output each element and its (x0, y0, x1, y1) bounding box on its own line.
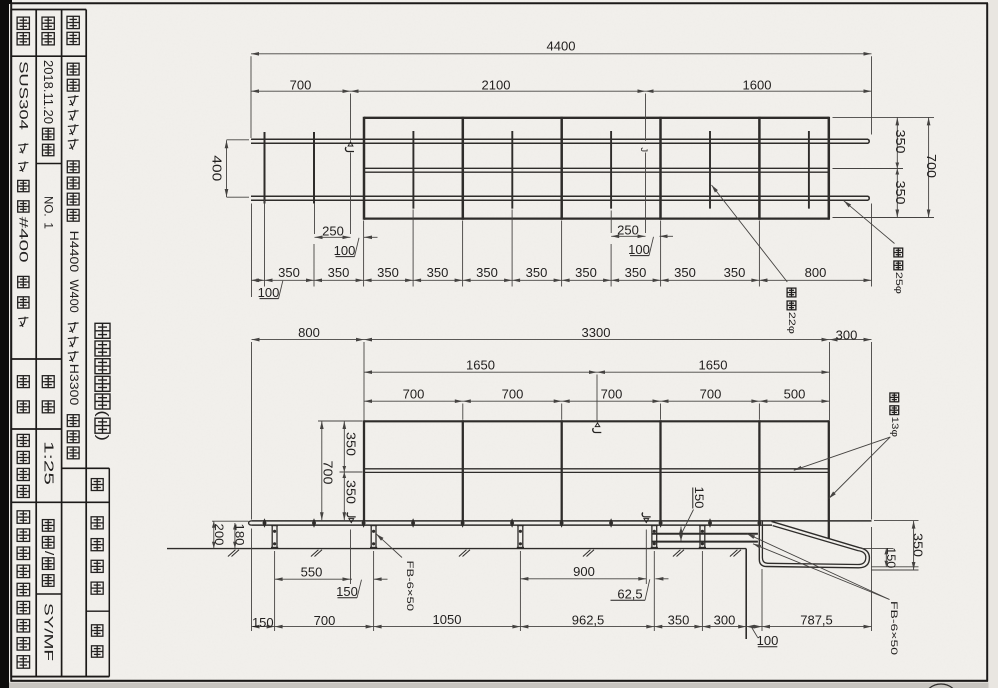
svg-text:200: 200 (212, 524, 226, 546)
svg-text:787,5: 787,5 (800, 612, 833, 627)
svg-text:800: 800 (298, 325, 320, 340)
svg-text:1600: 1600 (743, 78, 772, 93)
svg-text:350: 350 (344, 480, 358, 504)
svg-text:350: 350 (328, 265, 350, 280)
svg-text:2018.11.20: 2018.11.20 (41, 60, 55, 124)
svg-text:4400: 4400 (547, 39, 576, 54)
svg-text:400: 400 (210, 155, 225, 181)
svg-text:62,5: 62,5 (617, 586, 642, 601)
svg-text:22φ: 22φ (786, 312, 797, 334)
svg-text:700: 700 (320, 461, 334, 485)
svg-text:): ) (94, 434, 111, 441)
svg-text:350: 350 (526, 265, 548, 280)
svg-text:350: 350 (476, 265, 498, 280)
svg-text:350: 350 (668, 612, 690, 627)
svg-text:FB-6×50: FB-6×50 (404, 561, 415, 612)
svg-text:3300: 3300 (582, 325, 611, 340)
svg-text:900: 900 (573, 564, 595, 579)
svg-text:800: 800 (805, 265, 827, 280)
svg-text:350: 350 (724, 265, 746, 280)
svg-text:180: 180 (233, 524, 247, 546)
svg-text:FB-6×50: FB-6×50 (888, 601, 899, 655)
svg-text:100: 100 (258, 285, 280, 300)
svg-text:350: 350 (575, 265, 597, 280)
svg-text:25φ: 25φ (893, 272, 904, 294)
svg-text:H4400: H4400 (67, 231, 79, 273)
svg-text:700: 700 (601, 387, 623, 402)
svg-text:1650: 1650 (466, 358, 495, 373)
svg-text:150: 150 (884, 547, 898, 568)
svg-text:1: 1 (42, 222, 56, 229)
svg-text:150: 150 (692, 487, 706, 509)
svg-text:(: ( (94, 410, 111, 417)
svg-text:SUS304: SUS304 (16, 61, 30, 130)
svg-text:13φ: 13φ (889, 417, 900, 437)
svg-text:100: 100 (334, 243, 356, 258)
svg-text:350: 350 (893, 181, 907, 205)
svg-text:300: 300 (836, 327, 858, 342)
svg-text:962,5: 962,5 (572, 612, 605, 627)
svg-text:#400: #400 (16, 217, 30, 263)
svg-text:350: 350 (278, 265, 300, 280)
svg-text:300: 300 (714, 612, 736, 627)
svg-text:NO.: NO. (42, 196, 56, 217)
svg-text:700: 700 (403, 387, 425, 402)
svg-text:350: 350 (427, 265, 449, 280)
svg-text:150: 150 (252, 615, 274, 630)
svg-text:350: 350 (344, 432, 358, 456)
svg-text:700: 700 (700, 387, 722, 402)
svg-text:350: 350 (910, 533, 924, 557)
svg-text:1:25: 1:25 (42, 441, 56, 485)
svg-text:100: 100 (628, 242, 650, 257)
svg-text:250: 250 (322, 223, 344, 238)
svg-text:700: 700 (924, 154, 938, 178)
svg-text:700: 700 (502, 387, 524, 402)
svg-text:350: 350 (674, 265, 696, 280)
svg-text:700: 700 (314, 613, 336, 628)
svg-text:J: J (638, 147, 649, 152)
svg-text:350: 350 (625, 265, 647, 280)
svg-text:1650: 1650 (699, 358, 728, 373)
svg-text:500: 500 (784, 387, 806, 402)
svg-text:2100: 2100 (482, 78, 511, 93)
svg-text:SY/MF: SY/MF (42, 603, 56, 661)
svg-text:150: 150 (336, 584, 358, 599)
svg-text:250: 250 (617, 222, 639, 237)
svg-text:1050: 1050 (433, 612, 462, 627)
svg-text:550: 550 (301, 565, 323, 580)
svg-text:100: 100 (757, 633, 779, 648)
svg-text:W400: W400 (67, 279, 79, 312)
svg-text:350: 350 (377, 265, 399, 280)
svg-text:350: 350 (893, 130, 907, 154)
svg-text:H3300: H3300 (67, 364, 79, 406)
svg-text:700: 700 (290, 78, 312, 93)
